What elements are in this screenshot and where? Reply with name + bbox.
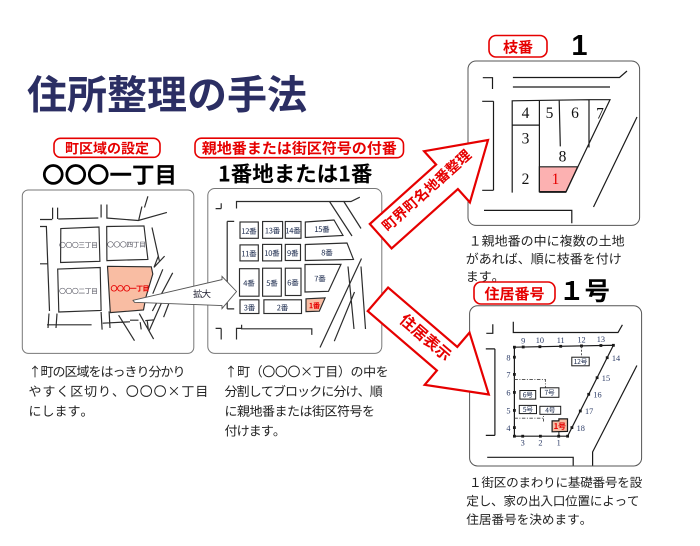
svg-text:14: 14 [612,354,621,363]
svg-text:17: 17 [585,407,593,416]
svg-text:2: 2 [538,438,542,447]
svg-text:3: 3 [521,438,525,447]
svg-text:7: 7 [506,371,510,380]
svg-text:6: 6 [506,389,510,398]
svg-text:7: 7 [596,106,604,123]
svg-text:1: 1 [552,171,560,188]
svg-text:9: 9 [521,337,525,346]
svg-text:6: 6 [571,105,579,122]
svg-text:8: 8 [506,353,510,362]
svg-text:10: 10 [536,336,544,345]
svg-text:3: 3 [522,130,530,147]
svg-text:4: 4 [522,105,530,122]
svg-text:5: 5 [506,407,510,416]
svg-text:11: 11 [557,336,565,345]
svg-text:16: 16 [593,391,601,400]
svg-text:13: 13 [597,335,605,344]
svg-text:5: 5 [546,105,554,122]
svg-text:1: 1 [571,30,587,62]
svg-text:1: 1 [557,438,561,447]
svg-text:18: 18 [577,424,585,433]
svg-text:2: 2 [522,171,530,188]
svg-text:12: 12 [577,335,585,344]
svg-text:8: 8 [559,148,567,165]
svg-text:15: 15 [602,374,610,383]
